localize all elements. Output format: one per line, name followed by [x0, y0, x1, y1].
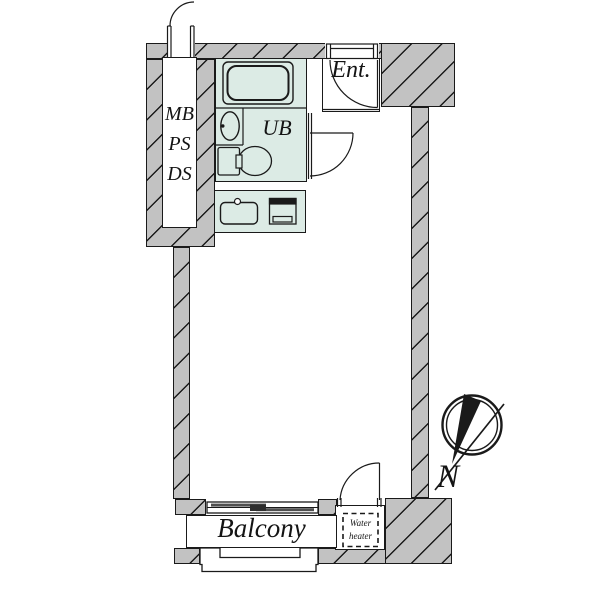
- wall-top-right-block: [381, 43, 455, 107]
- wall-balcony-left-block: [174, 548, 200, 564]
- shaft-label-ps: PS: [163, 129, 196, 159]
- water-heater-label: Water heater: [344, 517, 377, 543]
- balcony-label: Balcony: [187, 513, 336, 544]
- wall-bottom-right-block: [385, 498, 452, 564]
- wall-left-stem: [173, 247, 190, 499]
- ub-door: [309, 113, 312, 179]
- balcony-parapet: [200, 548, 318, 572]
- shaft-label-ds: DS: [163, 159, 196, 189]
- water-heater-label-line1: Water: [344, 517, 377, 530]
- kitchen-counter-area: [214, 190, 306, 233]
- water-heater-label-line2: heater: [344, 530, 377, 543]
- shaft-label: MB PS DS: [163, 99, 196, 189]
- entrance-label: Ent.: [323, 57, 379, 84]
- shaft-label-mb: MB: [163, 99, 196, 129]
- balcony-window: [207, 502, 318, 513]
- unit-bath-label: UB: [252, 115, 302, 141]
- wall-right-stem: [411, 107, 429, 498]
- floor-plan: MB PS DS UB Ent. Balcony Water heater N: [0, 0, 600, 600]
- compass-north-label: N: [429, 459, 467, 496]
- interior-door-swing: [310, 133, 353, 176]
- service-door-swing: [338, 463, 382, 507]
- wall-under-heater-band: [318, 548, 386, 564]
